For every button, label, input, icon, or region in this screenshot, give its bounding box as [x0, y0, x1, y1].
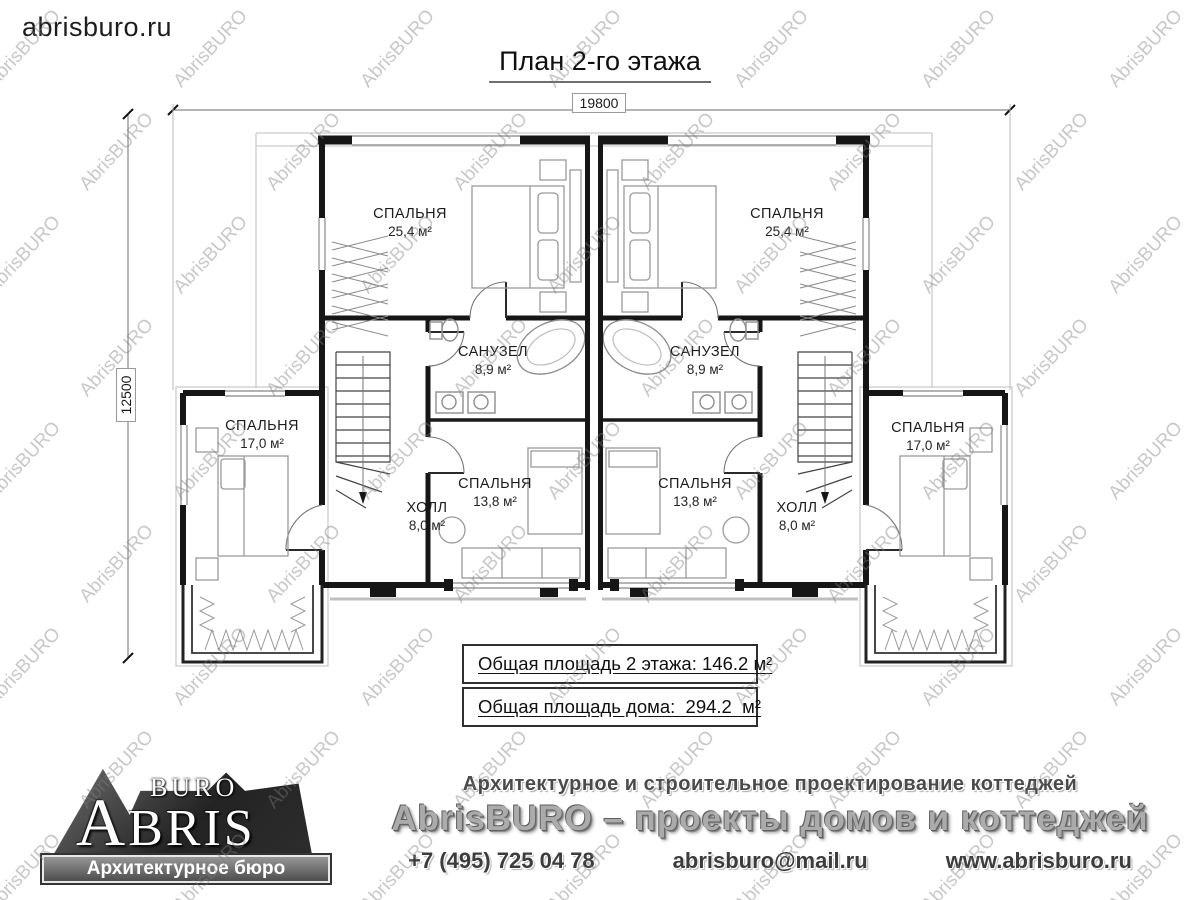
- room-label-bedroom-13-left: СПАЛЬНЯ 13,8 м²: [420, 476, 570, 509]
- room-label-bedroom-25-left: СПАЛЬНЯ 25,4 м²: [335, 206, 485, 239]
- page: abrisburo.ru План 2-го этажа 19800 12500…: [0, 0, 1200, 900]
- summary-floor-area: Общая площадь 2 этажа: 146.2 м²: [462, 644, 758, 684]
- dimension-width-label: 19800: [572, 93, 626, 113]
- footer-phone: +7 (495) 725 04 78: [408, 848, 595, 874]
- room-area: 25,4 м²: [335, 224, 485, 239]
- footer-site: www.abrisburo.ru: [946, 848, 1132, 874]
- room-area: 8,0 м²: [352, 518, 502, 533]
- room-name: СПАЛЬНЯ: [853, 420, 1003, 436]
- room-area: 17,0 м²: [187, 436, 337, 451]
- room-name: СПАЛЬНЯ: [712, 206, 862, 222]
- summary-house-area: Общая площадь дома: 294.2 м²: [462, 687, 758, 727]
- room-name: СПАЛЬНЯ: [620, 476, 770, 492]
- dimension-height-label: 12500: [116, 368, 136, 422]
- party-wall: [585, 137, 603, 590]
- summary-floor-area-text: Общая площадь 2 этажа: 146.2 м²: [478, 653, 772, 675]
- room-area: 8,9 м²: [630, 362, 780, 377]
- room-area: 8,9 м²: [418, 362, 568, 377]
- room-name: САНУЗЕЛ: [418, 344, 568, 360]
- room-label-bathroom-left: САНУЗЕЛ 8,9 м²: [418, 344, 568, 377]
- room-area: 13,8 м²: [620, 494, 770, 509]
- room-area: 13,8 м²: [420, 494, 570, 509]
- footer-contacts: +7 (495) 725 04 78 abrisburo@mail.ru www…: [345, 848, 1195, 874]
- room-area: 8,0 м²: [722, 518, 872, 533]
- room-name: СПАЛЬНЯ: [420, 476, 570, 492]
- abris-logo: BURO ABRIS Архитектурное бюро: [52, 767, 320, 889]
- footer-text: Архитектурное и строительное проектирова…: [345, 773, 1195, 874]
- site-logo: abrisburo.ru: [22, 12, 172, 43]
- room-area: 25,4 м²: [712, 224, 862, 239]
- summary-house-area-text: Общая площадь дома: 294.2 м²: [478, 696, 761, 718]
- page-title: План 2-го этажа: [489, 46, 711, 83]
- footer-line1: Архитектурное и строительное проектирова…: [345, 773, 1195, 796]
- room-name: СПАЛЬНЯ: [335, 206, 485, 222]
- footer-line2: AbrisBURO – проекты домов и коттеджей: [345, 799, 1195, 839]
- room-label-bedroom-13-right: СПАЛЬНЯ 13,8 м²: [620, 476, 770, 509]
- abris-logo-abris: ABRIS: [76, 783, 256, 862]
- room-label-bedroom-17-left: СПАЛЬНЯ 17,0 м²: [187, 418, 337, 451]
- room-label-bedroom-25-right: СПАЛЬНЯ 25,4 м²: [712, 206, 862, 239]
- room-name: СПАЛЬНЯ: [187, 418, 337, 434]
- room-label-bedroom-17-right: СПАЛЬНЯ 17,0 м²: [853, 420, 1003, 453]
- room-label-bathroom-right: САНУЗЕЛ 8,9 м²: [630, 344, 780, 377]
- room-name: САНУЗЕЛ: [630, 344, 780, 360]
- abris-logo-tagline: Архитектурное бюро: [40, 853, 332, 885]
- room-area: 17,0 м²: [853, 438, 1003, 453]
- footer: BURO ABRIS Архитектурное бюро Архитектур…: [0, 765, 1200, 900]
- footer-email: abrisburo@mail.ru: [673, 848, 868, 874]
